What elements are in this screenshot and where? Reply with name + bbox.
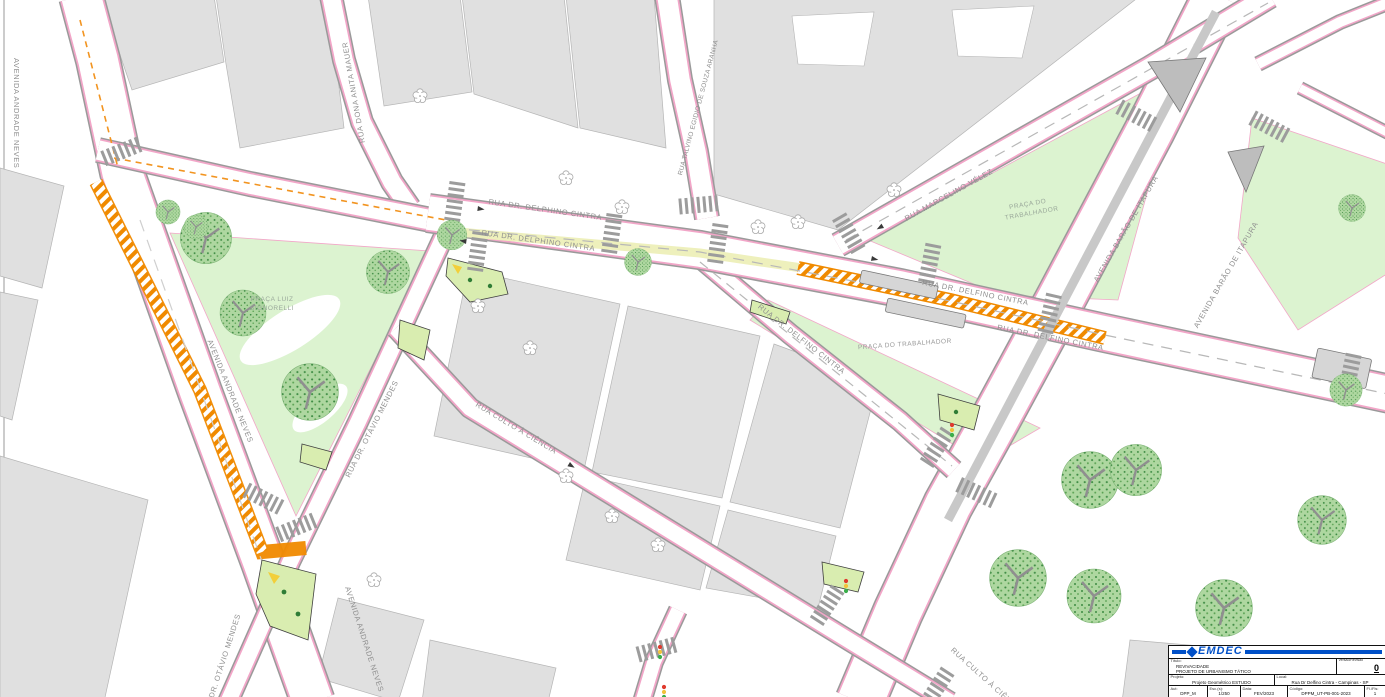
local-label: Local: [1277,675,1288,679]
title-block-logo-row: EMDEC [1169,646,1385,658]
tree [156,200,180,224]
building [566,0,666,148]
building [592,306,760,498]
date-label: Data: [1243,687,1253,691]
project-value: Projeto Geométrico ESTUDO [1171,680,1272,686]
tree [625,249,652,276]
logo-bar-right [1245,650,1382,654]
traffic-signal [658,645,662,659]
scale-cell: Esc.(s): 1/250 [1207,686,1240,697]
tree [1067,569,1121,623]
author-cell: Aut: DPP_M [1169,686,1207,697]
drawing-sheet: AVENIDA ANDRADE NEVES AVENIDA ANDRADE NE… [0,0,1385,697]
street-tree [367,573,381,587]
building [462,0,578,128]
project-label: Projeto: [1171,675,1185,679]
title-cell: Título: REVIVACIDADE PROJETO DE URBANISM… [1169,659,1336,674]
scale-value: 1/250 [1210,691,1238,697]
street-label-andrade-neves: AVENIDA ANDRADE NEVES [12,58,21,168]
tree [366,250,409,293]
sheet-cell: Fl./Fls: 1 [1364,686,1385,697]
building [0,168,64,288]
sheet-label: Fl./Fls: [1367,687,1379,691]
author-value: DPP_M [1171,691,1205,697]
title-label: Título: [1171,659,1182,663]
direction-arrow [871,256,879,262]
local-cell: Local: Rua Dr Delfino Cintra - Campinas … [1274,675,1385,686]
emdec-logo: EMDEC [1198,646,1243,657]
tree [1110,444,1161,495]
local-value: Rua Dr Delfino Cintra - Campinas - SP [1277,680,1383,686]
traffic-signal [950,423,954,437]
logo-bar-left [1172,650,1186,654]
plaza-label-trabalhador-south: PRAÇA DO TRABALHADOR [858,338,952,352]
planter-island [398,320,430,360]
project-cell: Projeto: Projeto Geométrico ESTUDO [1169,675,1274,686]
sheet-value: 1 [1367,691,1383,697]
street-tree [751,220,765,234]
version-value: 0 [1339,664,1383,673]
road-topright-corner [1258,2,1385,134]
tree [1298,496,1347,545]
tree [1062,452,1119,509]
urban-plan-map: AVENIDA ANDRADE NEVES AVENIDA ANDRADE NE… [0,0,1385,697]
title-line2: PROJETO DE URBANISMO TÁTICO [1171,669,1334,673]
tree [282,364,339,421]
version-cell: Versão/Revisão 0 [1336,659,1385,674]
traffic-signal [844,579,848,593]
tree [990,550,1047,607]
author-label: Aut: [1171,687,1178,691]
building [422,640,556,697]
tree [184,215,208,239]
street-label-barao-itapura: AVENIDA BARÃO DE ITAPURA [1192,220,1260,329]
tree [1196,580,1253,637]
building-courtyard [792,12,874,66]
street-tree [615,200,629,214]
street-tree [559,171,573,185]
scale-label: Esc.(s): [1210,687,1224,691]
date-cell: Data: FEV/2023 [1240,686,1287,697]
tree [437,220,467,250]
building [0,292,38,420]
title-block: EMDEC Título: REVIVACIDADE PROJETO DE UR… [1168,645,1385,697]
building [0,456,148,697]
tree [1330,374,1362,406]
date-value: FEV/2023 [1243,691,1285,697]
code-label: Código: [1290,687,1304,691]
traffic-signal [662,685,666,697]
plaza-label-signorelli: PRAÇA LUIZ [251,296,294,303]
code-value: DPPM_UT-PB-001-2023 [1290,691,1362,697]
building-courtyard [952,6,1034,58]
tree [1339,195,1366,222]
emdec-diamond-icon [1186,646,1197,657]
version-label: Versão/Revisão [1339,659,1364,663]
planter-island [822,562,864,592]
street-label-culto-ciencia: RUA CULTO À CIÊNCIA [949,646,1024,697]
plaza-label-signorelli: SIGNORELLI [250,305,294,312]
code-cell: Código: DPPM_UT-PB-001-2023 [1287,686,1364,697]
